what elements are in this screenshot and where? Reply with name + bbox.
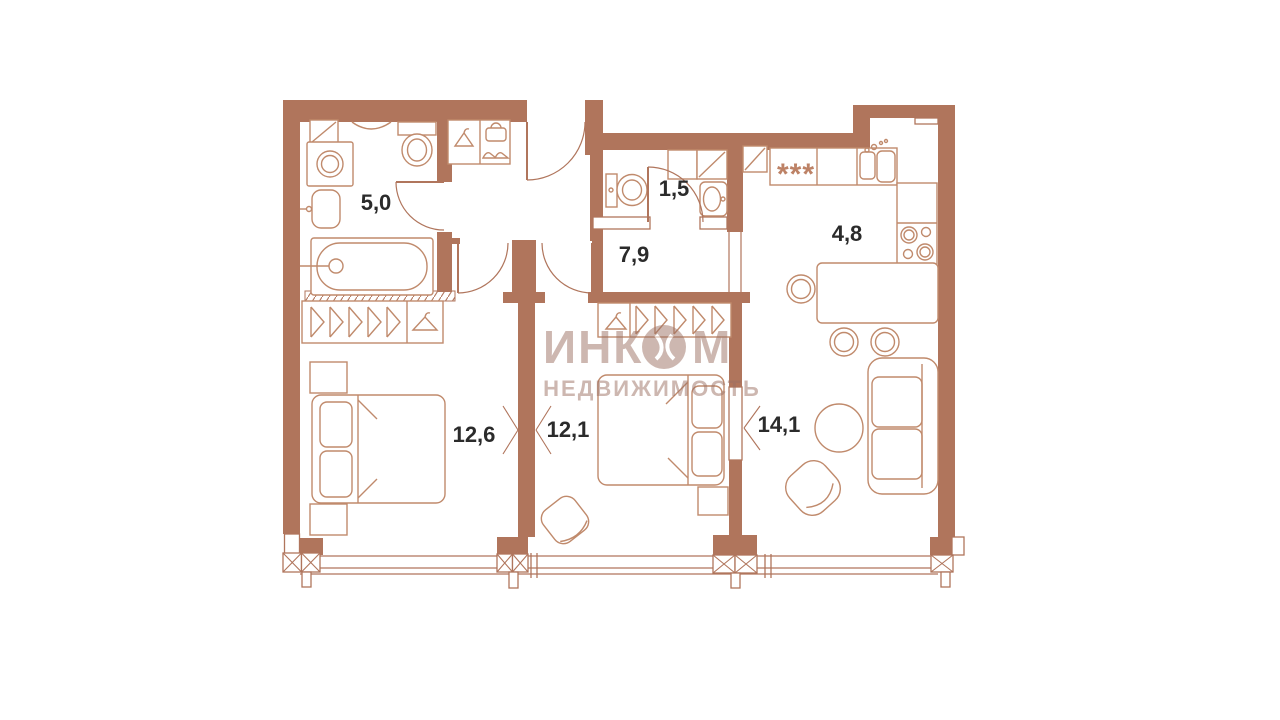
pier4-box [952,537,964,555]
label-bedroom2-area: 12,1 [547,417,590,442]
floor-plan-canvas: *** [0,0,1280,720]
toilet2-tank [606,174,617,207]
toilet-tank [398,122,436,135]
label-bathroom-area: 5,0 [361,190,392,215]
pier-foot [941,572,950,587]
watermark-tagline: НЕДВИЖИМОСТЬ [543,376,761,401]
wall-bedroom2-top-flare [722,292,750,303]
pillow-icon [320,451,352,497]
wall-left [283,100,300,534]
hob-symbol: *** [777,158,815,191]
wall-nook-pier [512,240,536,293]
wall-top-right [853,105,955,118]
wall-bedroom2-top [595,292,730,303]
wall-pier2-block [497,537,528,555]
sofa-icon [868,358,938,494]
label-kitchen-area: 4,8 [832,221,863,246]
nightstand-icon [310,504,347,535]
floor-plan: *** [0,0,1280,720]
label-bedroom1-area: 12,6 [453,422,496,447]
wall-pier3-block [713,535,757,555]
coffee-table-icon [815,404,863,452]
watermark-brand-prefix: ИНК [543,321,643,373]
wall-wc-bottom-left [593,217,650,229]
toilet2-icon [617,175,647,206]
label-living-area: 14,1 [758,412,801,437]
wall-pier4-block [930,537,952,555]
watermark: ИНК М НЕДВИЖИМОСТЬ [543,321,761,401]
wall-top-left [283,100,527,122]
vent-shaft [668,150,697,179]
watermark-brand-suffix: М [692,321,732,373]
wall-entrance-jamb [585,100,603,155]
bench-icon [698,487,728,515]
pier1-box [285,534,300,554]
dining-table-icon [817,263,938,323]
wash-basin-icon [312,190,340,228]
wall-right [938,118,955,537]
watermark-logo-icon [642,325,686,369]
label-hallway-area: 7,9 [619,242,650,267]
nightstand-icon [310,362,347,393]
bedroom-1 [302,301,445,535]
wall-bathroom-right-lower [437,232,452,292]
wall-top-right-step [915,118,938,124]
wall-nook-right [592,241,603,293]
logo-circle [642,325,686,369]
wall-pier-flare [503,292,545,303]
label-wc-area: 1,5 [659,176,690,201]
entry-closet [448,120,510,164]
pier-foot [302,572,311,587]
wall-wc-kitchen [727,147,743,232]
wall-bedroom-divider [518,302,535,537]
pillow-icon [692,432,722,476]
pillow-icon [320,402,352,447]
wall-living-divider-lower [729,460,742,537]
wall-wc-bottom-right [700,217,727,229]
washing-machine-icon [307,142,353,186]
pier-foot [509,572,518,588]
pier-foot [731,573,740,588]
